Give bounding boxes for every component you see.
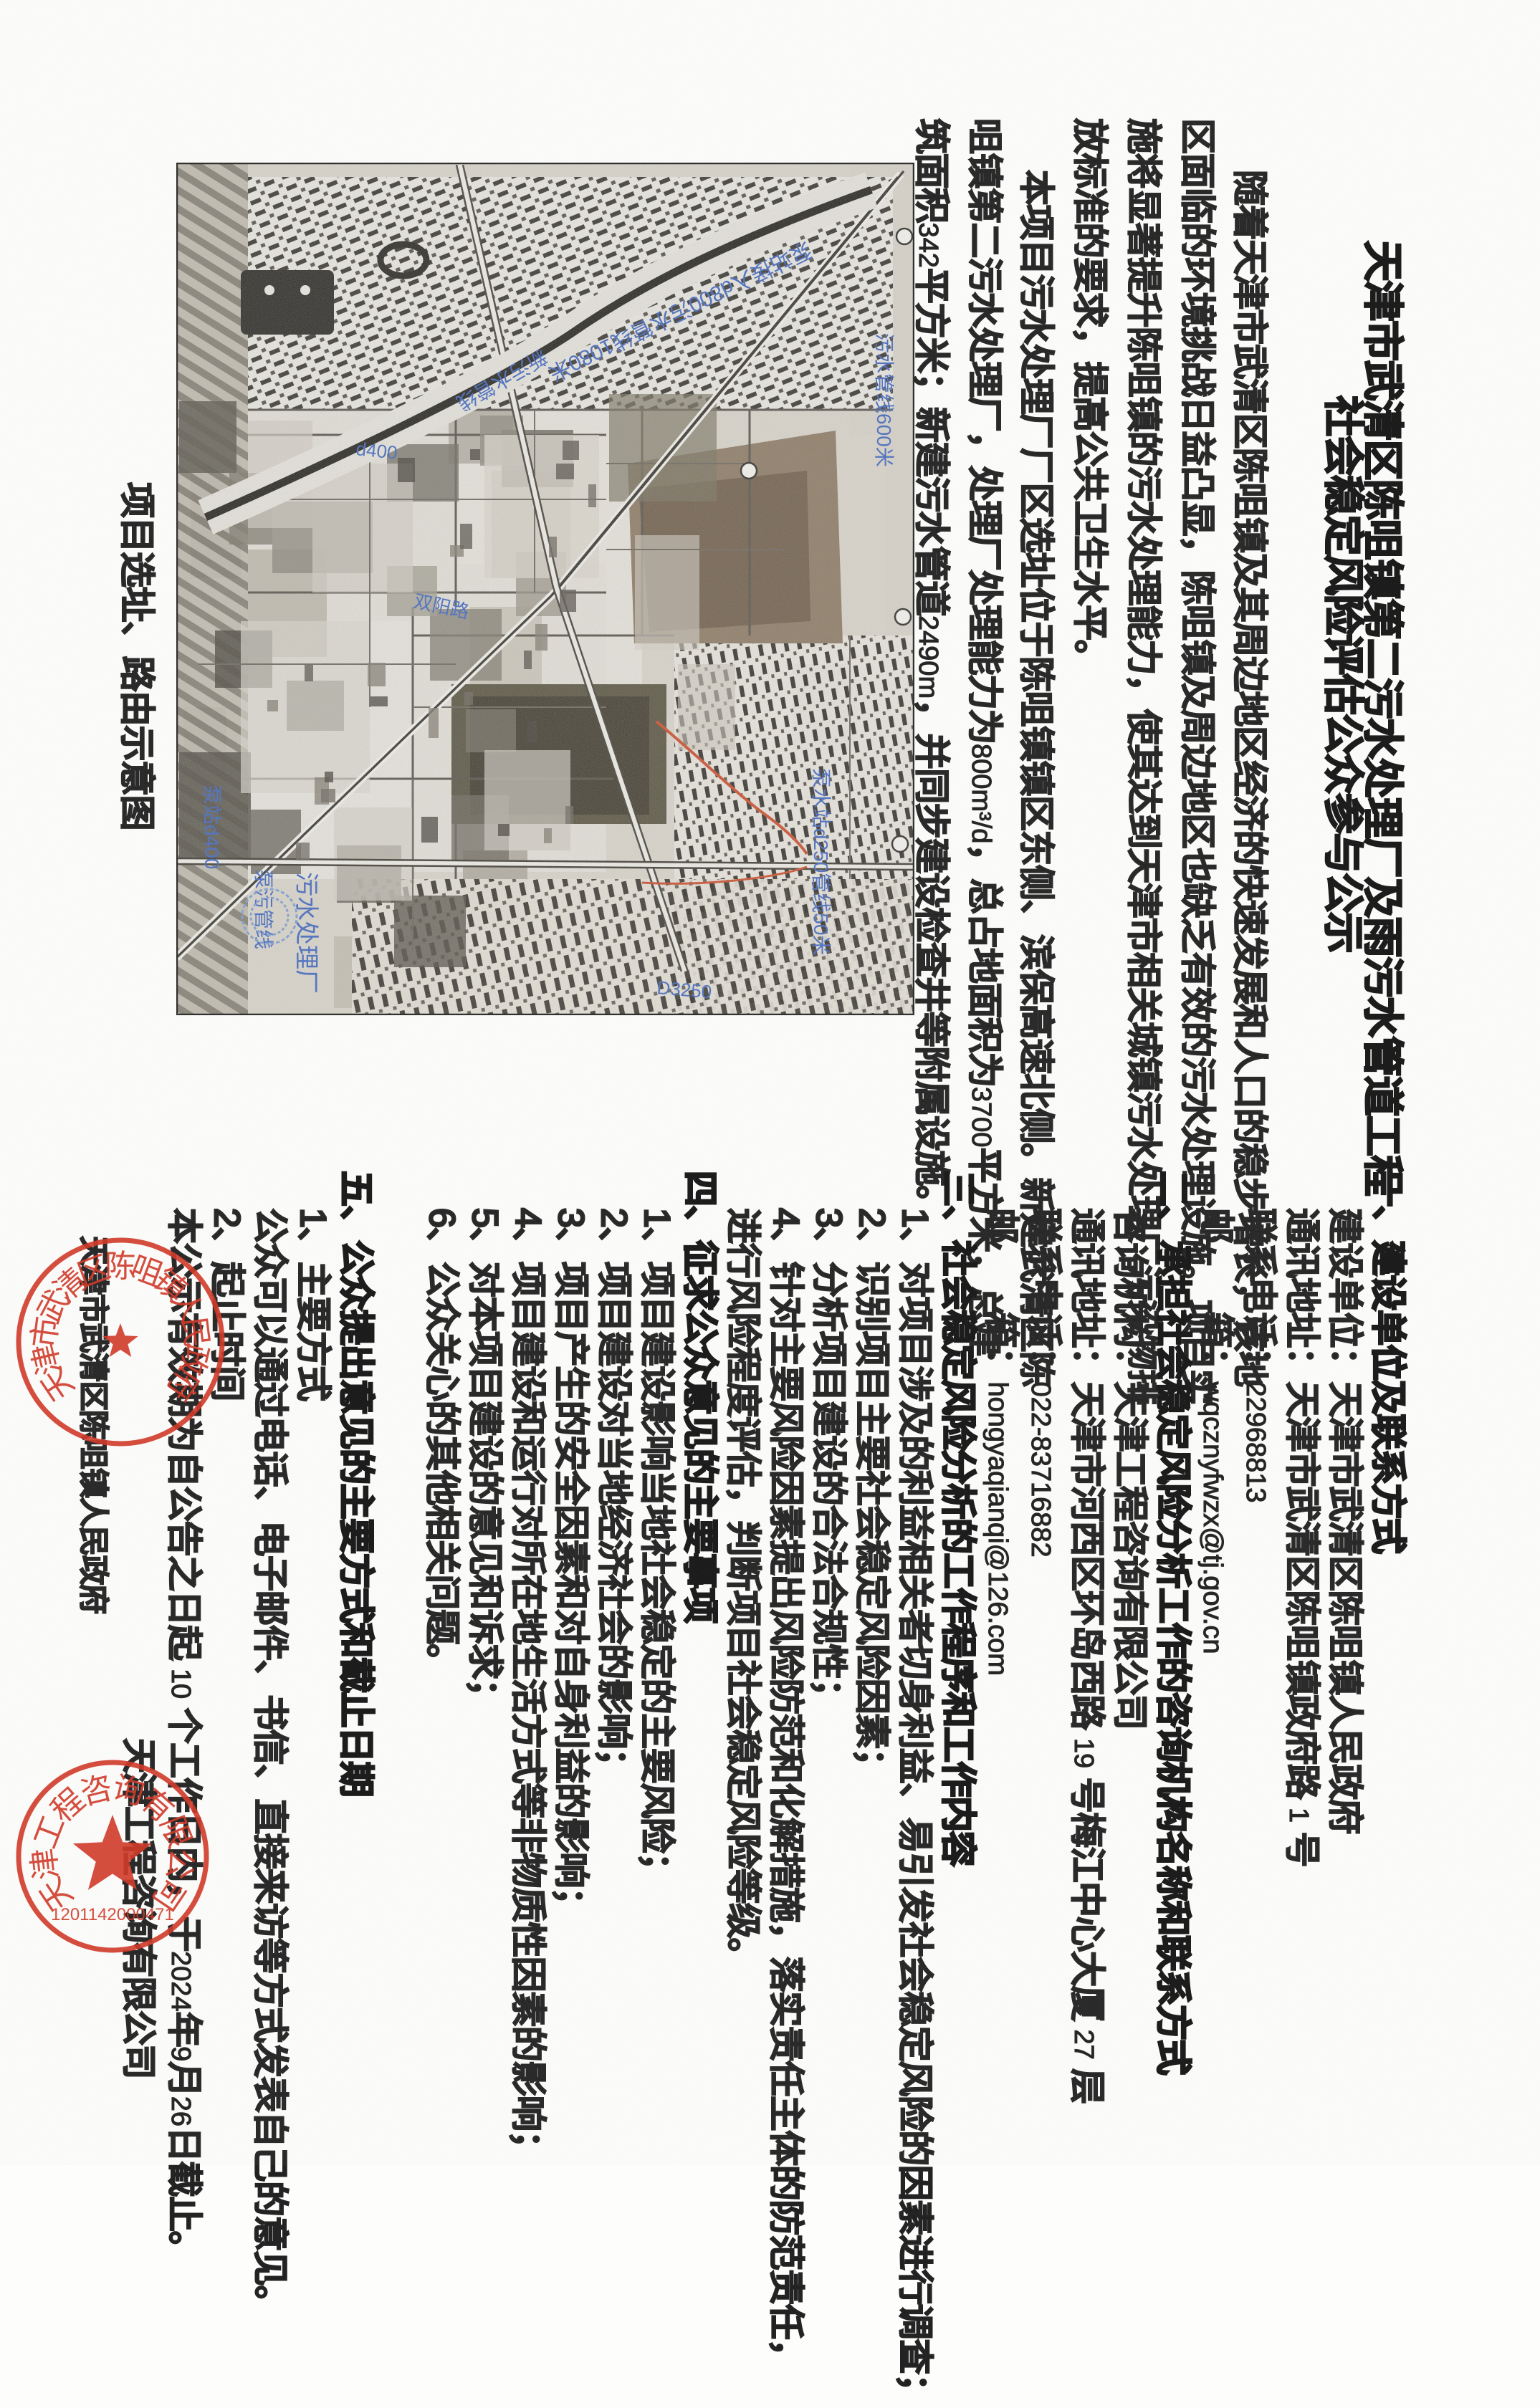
svg-text:1201142000471: 1201142000471 xyxy=(51,1905,174,1924)
